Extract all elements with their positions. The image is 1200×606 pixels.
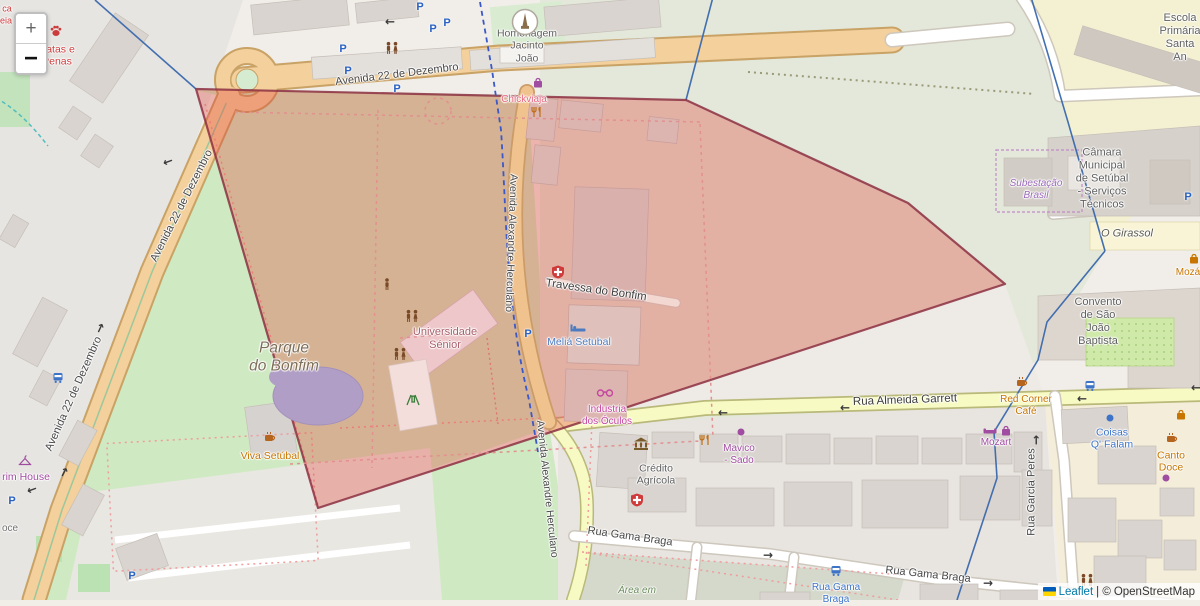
convento-garden-dots bbox=[1086, 318, 1174, 366]
zoom-out-button[interactable]: − bbox=[16, 44, 46, 73]
green-patch-topleft bbox=[0, 72, 30, 127]
attribution-bar: Leaflet | © OpenStreetMap bbox=[1038, 583, 1200, 600]
osm-link[interactable]: OpenStreetMap bbox=[1114, 586, 1195, 598]
ukraine-flag-icon bbox=[1043, 587, 1056, 596]
green-square-2 bbox=[78, 564, 110, 592]
zoom-in-button[interactable]: + bbox=[16, 14, 46, 44]
map-canvas[interactable] bbox=[0, 0, 1200, 600]
zoom-control: + − bbox=[14, 12, 48, 75]
attribution-separator: | © bbox=[1096, 586, 1111, 598]
leaflet-link[interactable]: Leaflet bbox=[1059, 586, 1094, 598]
map-screenshot: { "map": { "controls": { "zoom_in": "+",… bbox=[0, 0, 1200, 600]
